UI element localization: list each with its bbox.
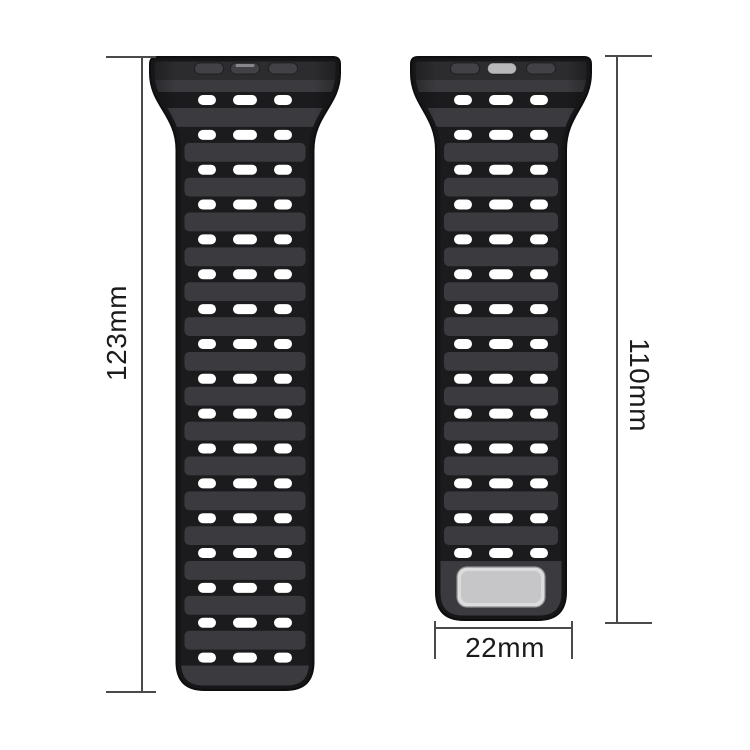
strap-long [150,57,340,690]
connector-slot [451,63,480,74]
strap-short [411,57,591,620]
right-dimension-label: 110mm [623,338,655,432]
connector-slots [451,63,556,74]
connector-slot [195,63,224,74]
left-dimension-bottom-cap [106,691,156,693]
left-dimension-top-cap [106,56,156,58]
right-dimension-top-cap [605,55,652,57]
right-dimension-bottom-cap [605,622,652,624]
bottom-dimension-left-tick [434,621,436,659]
product-dimension-diagram: 123mm 110mm 22mm [0,0,750,750]
bottom-dimension-label: 22mm [465,632,545,664]
right-dimension-line [616,56,618,623]
left-dimension-line [141,57,143,692]
left-dimension-label: 123mm [101,285,133,381]
connector-slot-center [488,63,517,74]
bottom-dimension-right-tick [571,621,573,659]
connector-slots [195,63,298,74]
connector-slot [269,63,298,74]
connector-slot [527,63,556,74]
bottom-dimension-line [435,627,572,629]
